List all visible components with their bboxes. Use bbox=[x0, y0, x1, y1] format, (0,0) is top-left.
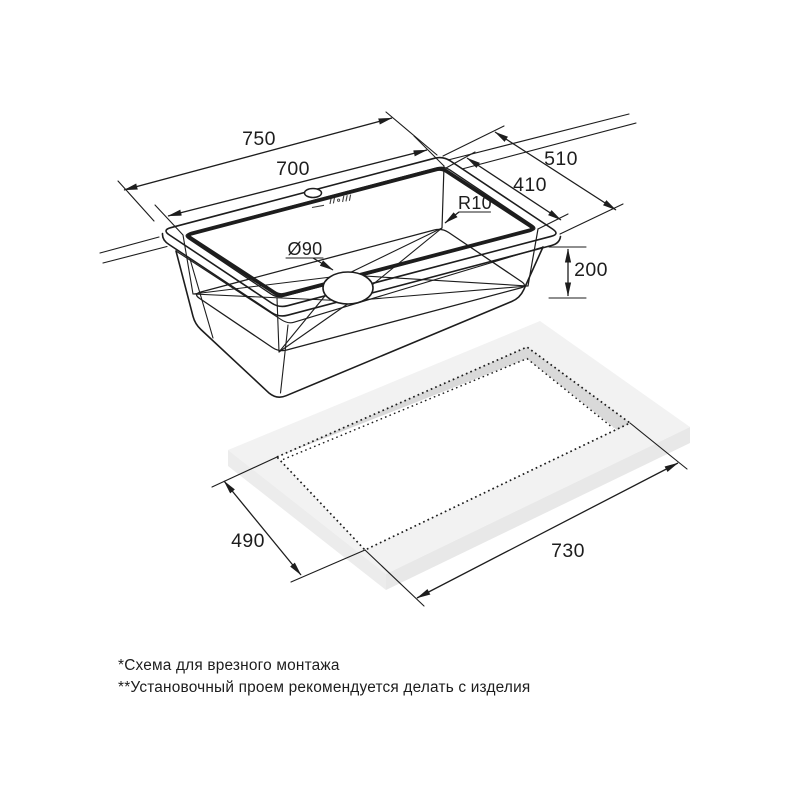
footnotes: *Схема для врезного монтажа **Установочн… bbox=[118, 657, 530, 696]
dimension-490-label: 490 bbox=[231, 530, 265, 552]
drain-hole bbox=[323, 272, 373, 304]
technical-diagram-page: 490 730 bbox=[0, 0, 800, 800]
dimension-510-label: 510 bbox=[544, 148, 578, 170]
dimension-730-label: 730 bbox=[551, 540, 585, 562]
dimension-750-label: 750 bbox=[242, 128, 276, 150]
dimension-410-label: 410 bbox=[513, 174, 547, 196]
dimension-200: 200 bbox=[549, 247, 608, 298]
faucet-hole bbox=[305, 189, 322, 198]
dimension-700-label: 700 bbox=[276, 158, 310, 180]
dimension-200-label: 200 bbox=[574, 259, 608, 281]
drain-diameter-label: Ø90 bbox=[288, 239, 323, 259]
callout-corner-radius: R10 bbox=[445, 193, 492, 223]
footnote-2: **Установочный проем рекомендуется делат… bbox=[118, 679, 530, 696]
callout-drain-diameter: Ø90 bbox=[286, 239, 333, 270]
corner-radius-label: R10 bbox=[458, 193, 492, 213]
footnote-1: *Схема для врезного монтажа bbox=[118, 657, 340, 674]
sink-technical-diagram: 490 730 bbox=[0, 0, 800, 800]
